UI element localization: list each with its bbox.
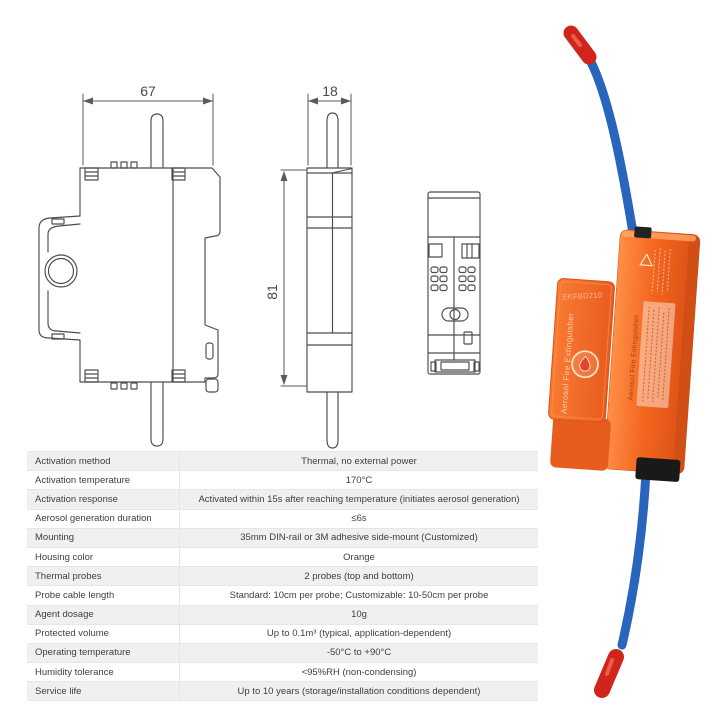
dim-depth: 18 <box>308 83 351 165</box>
table-row: Operating temperature -50°C to +90°C <box>27 643 538 662</box>
spec-label: Humidity tolerance <box>27 663 180 682</box>
spec-value: <95%RH (non-condensing) <box>180 663 539 682</box>
table-row: Housing color Orange <box>27 547 538 566</box>
dim-width: 67 <box>83 83 213 165</box>
dim-depth-label: 18 <box>322 83 338 99</box>
housing: EKFBD210 Aerosol Fire Extinguisher Aeros… <box>544 221 700 482</box>
spec-label: Activation method <box>27 452 180 471</box>
spec-value: 10g <box>180 605 539 624</box>
spec-value: Thermal, no external power <box>180 452 539 471</box>
table-row: Activation method Thermal, no external p… <box>27 452 538 471</box>
bottom-cable-connector <box>635 457 680 482</box>
top-probe-cable <box>590 60 633 233</box>
spec-label: Agent dosage <box>27 605 180 624</box>
table-row: Probe cable length Standard: 10cm per pr… <box>27 586 538 605</box>
bottom-probe-cable <box>622 472 646 645</box>
spec-value: Orange <box>180 547 539 566</box>
spec-value: ≤6s <box>180 509 539 528</box>
table-row: Activation temperature 170°C <box>27 471 538 490</box>
spec-label: Housing color <box>27 547 180 566</box>
table-row: Thermal probes 2 probes (top and bottom) <box>27 567 538 586</box>
dim-height: 81 <box>264 170 307 386</box>
spec-label: Activation temperature <box>27 471 180 490</box>
flame-logo-icon <box>571 350 599 378</box>
table-row: Mounting 35mm DIN-rail or 3M adhesive si… <box>27 528 538 547</box>
spec-value: 2 probes (top and bottom) <box>180 567 539 586</box>
spec-label: Service life <box>27 682 180 701</box>
spec-label: Protected volume <box>27 624 180 643</box>
dim-width-label: 67 <box>140 83 156 99</box>
table-row: Aerosol generation duration ≤6s <box>27 509 538 528</box>
side-view-drawing <box>39 114 220 446</box>
spec-value: Up to 0.1m³ (typical, application-depend… <box>180 624 539 643</box>
spec-value: 35mm DIN-rail or 3M adhesive side-mount … <box>180 528 539 547</box>
table-row: Humidity tolerance <95%RH (non-condensin… <box>27 663 538 682</box>
table-row: Activation response Activated within 15s… <box>27 490 538 509</box>
top-cable-connector <box>634 226 652 238</box>
spec-value: Activated within 15s after reaching temp… <box>180 490 539 509</box>
table-row: Service life Up to 10 years (storage/ins… <box>27 682 538 701</box>
specs-table: Activation method Thermal, no external p… <box>27 451 538 701</box>
spec-value: Standard: 10cm per probe; Customizable: … <box>180 586 539 605</box>
spec-value: Up to 10 years (storage/installation con… <box>180 682 539 701</box>
table-row: Protected volume Up to 0.1m³ (typical, a… <box>27 624 538 643</box>
spec-label: Operating temperature <box>27 643 180 662</box>
spec-label: Mounting <box>27 528 180 547</box>
dim-height-label: 81 <box>264 284 280 300</box>
table-row: Agent dosage 10g <box>27 605 538 624</box>
spec-label: Aerosol generation duration <box>27 509 180 528</box>
detail-view-drawing <box>428 192 480 374</box>
spec-label: Thermal probes <box>27 567 180 586</box>
spec-value: 170°C <box>180 471 539 490</box>
spec-value: -50°C to +90°C <box>180 643 539 662</box>
spec-label: Activation response <box>27 490 180 509</box>
spec-label: Probe cable length <box>27 586 180 605</box>
product-photo: EKFBD210 Aerosol Fire Extinguisher Aeros… <box>540 0 720 720</box>
front-view-drawing <box>307 113 352 448</box>
technical-drawings: 67 81 18 <box>0 0 545 460</box>
